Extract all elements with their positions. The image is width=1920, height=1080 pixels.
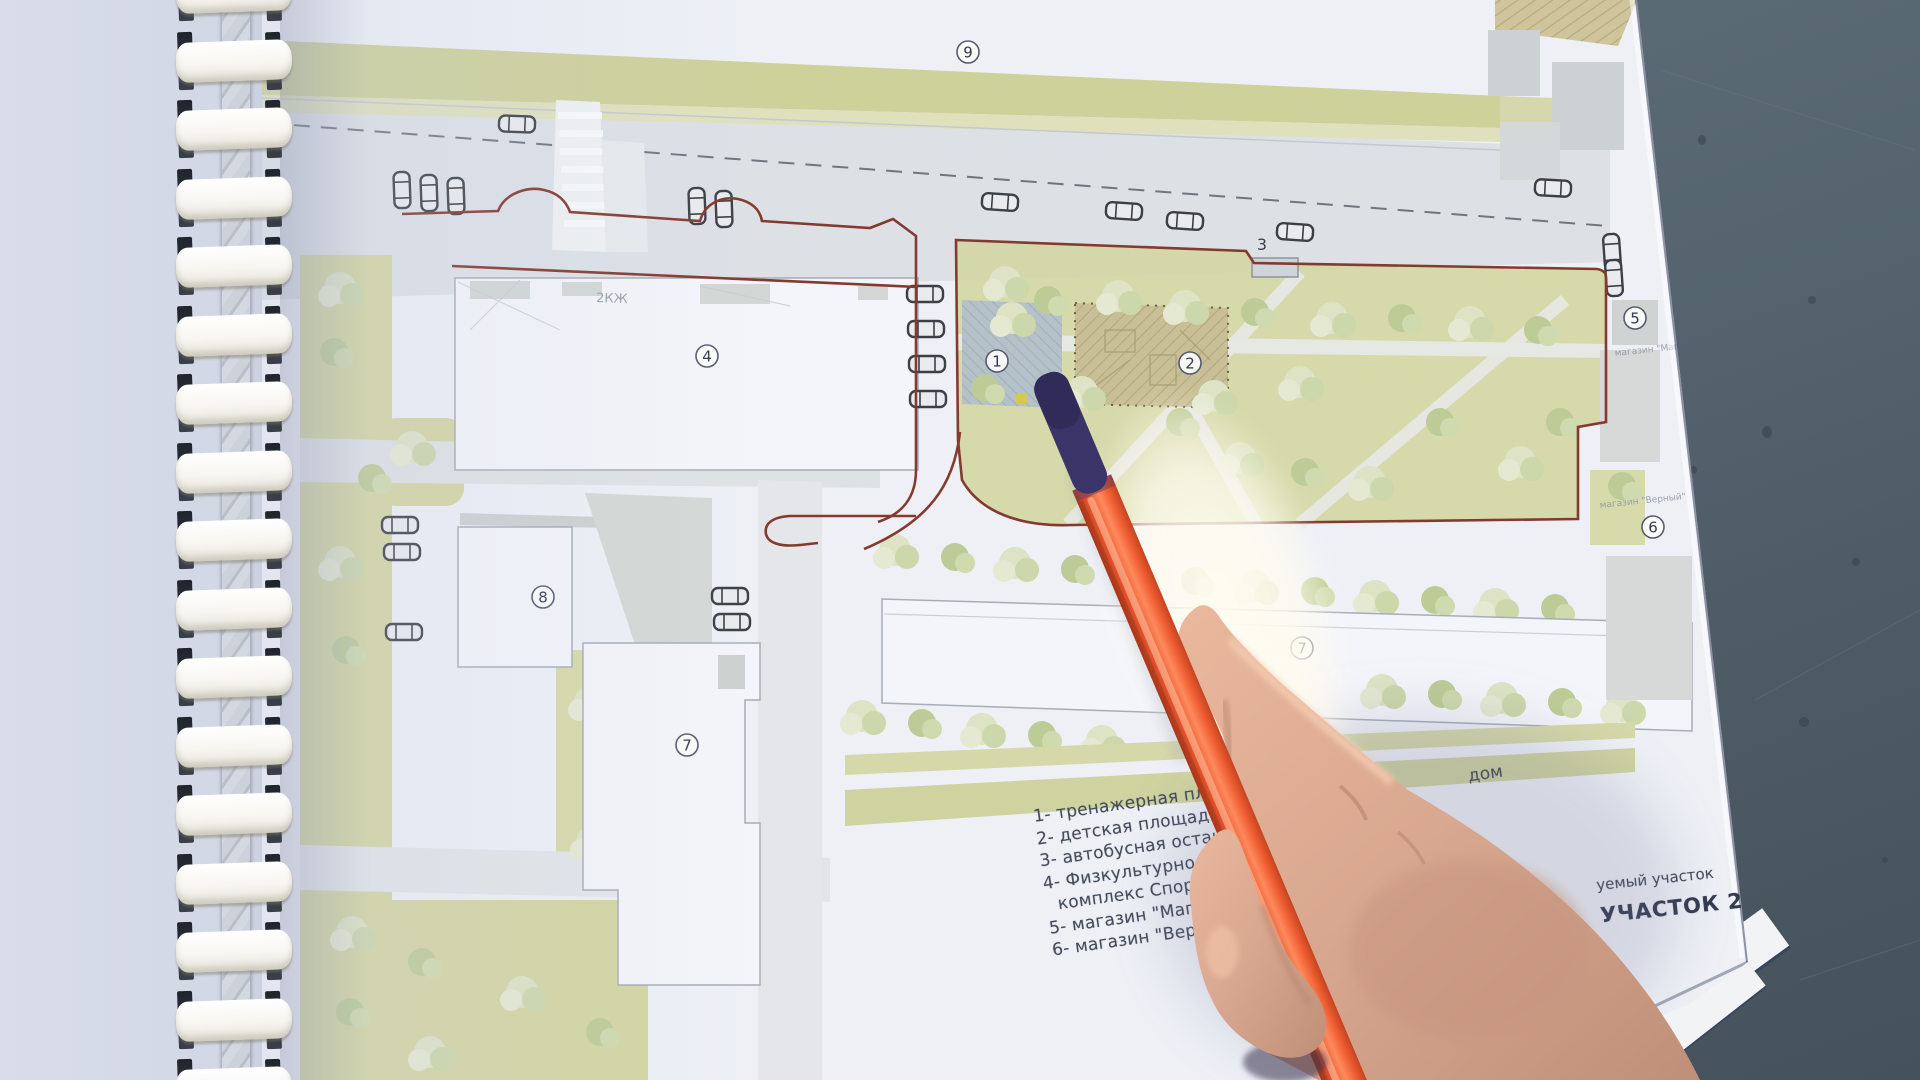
hand-and-pen <box>0 0 1920 1080</box>
photo-scene: 2КЖ <box>0 0 1920 1080</box>
